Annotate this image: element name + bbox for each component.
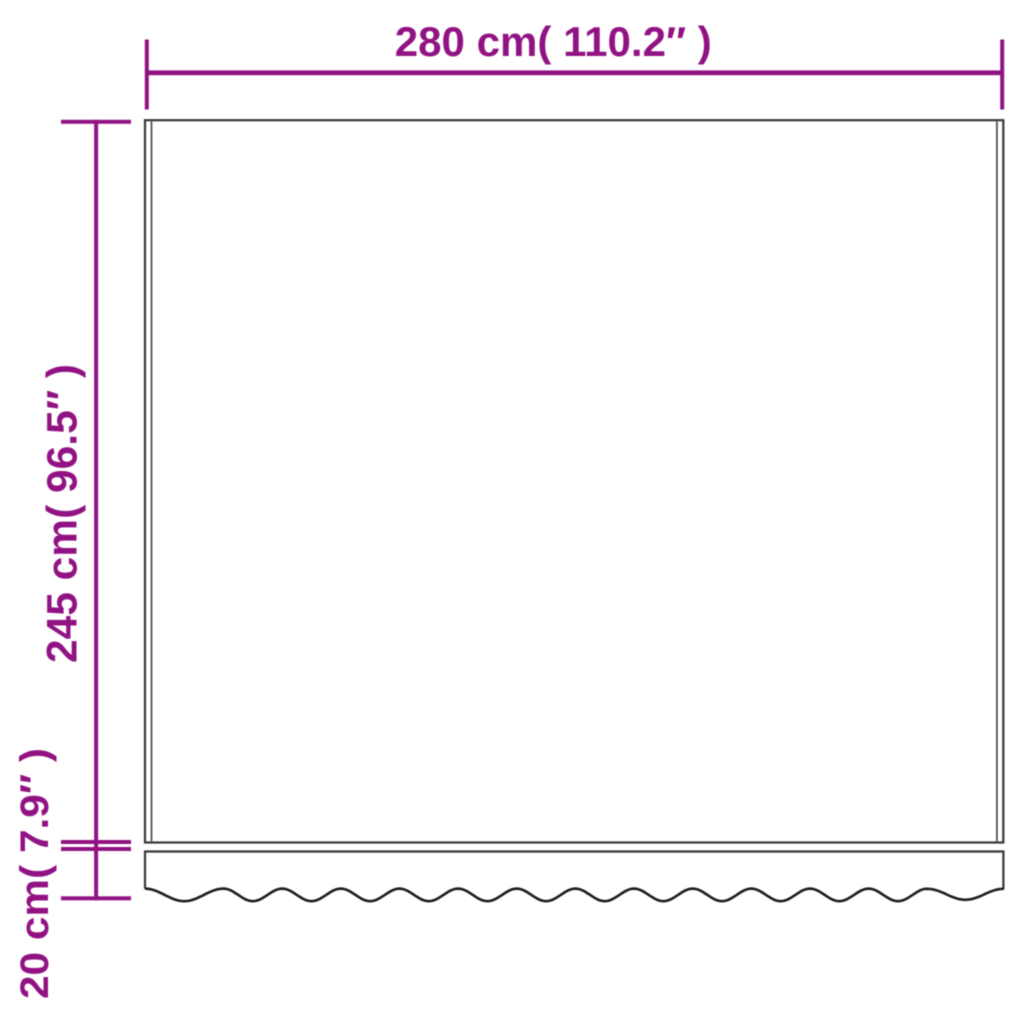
svg-text:280 cm( 110.2″ ): 280 cm( 110.2″ ) (395, 18, 712, 65)
svg-text:245 cm( 96.5″ ): 245 cm( 96.5″ ) (39, 364, 87, 663)
svg-text:20 cm( 7.9″ ): 20 cm( 7.9″ ) (13, 748, 57, 999)
